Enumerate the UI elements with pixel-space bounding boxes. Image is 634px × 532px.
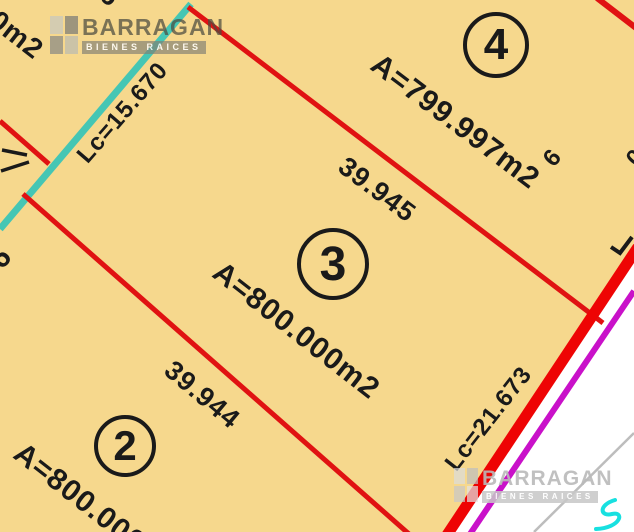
lot-3-number-circle: 3 bbox=[297, 228, 369, 300]
lot-3-number: 3 bbox=[320, 237, 347, 292]
lot-line-1-2-stub bbox=[0, 121, 49, 164]
lot-2-number: 2 bbox=[113, 422, 136, 470]
barragan-logo-icon bbox=[50, 16, 78, 54]
lot-2-number-circle: 2 bbox=[94, 415, 156, 477]
lot-4-number-circle: 4 bbox=[463, 12, 529, 78]
cadastral-plan: 4 3 2 A=799.997m2 A=800.000m2 A=800.000m… bbox=[0, 0, 634, 532]
tick-mark bbox=[1, 162, 29, 171]
watermark-tagline: BIENES RAICES bbox=[82, 41, 206, 54]
watermark-brand: BARRAGAN bbox=[482, 468, 613, 489]
barragan-logo-icon bbox=[454, 468, 478, 502]
watermark-tagline: BIENES RAICES bbox=[482, 491, 598, 503]
watermark-brand: BARRAGAN bbox=[82, 16, 224, 39]
lot-line-4-5 bbox=[597, 0, 634, 28]
watermark-bottom-right: BARRAGAN BIENES RAICES bbox=[454, 468, 613, 503]
watermark-top-left: BARRAGAN BIENES RAICES bbox=[50, 16, 224, 54]
lot-4-number: 4 bbox=[484, 20, 508, 70]
tick-mark bbox=[2, 150, 27, 155]
glyph-fragment-check bbox=[611, 237, 632, 253]
